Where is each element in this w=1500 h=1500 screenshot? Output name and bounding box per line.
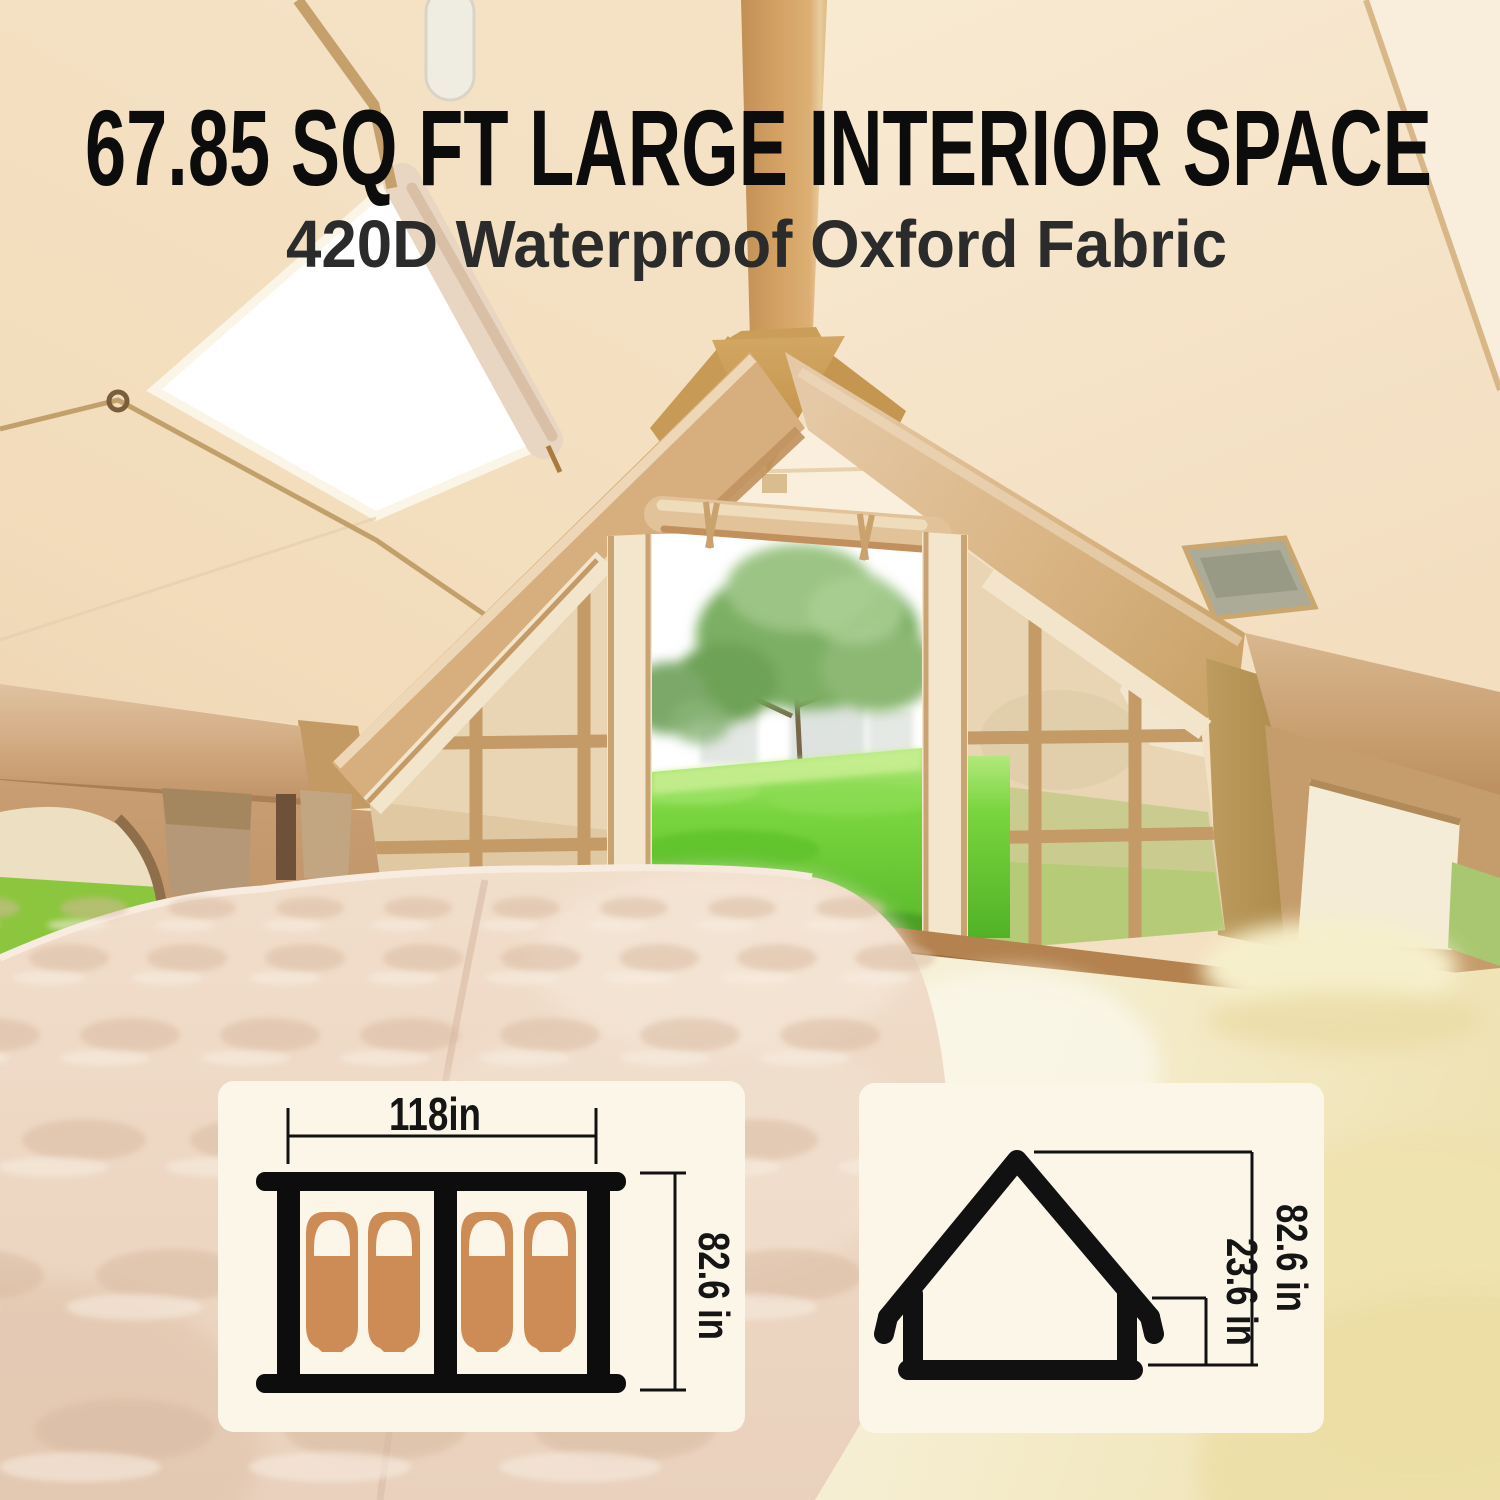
svg-text:118in: 118in (389, 1088, 481, 1140)
svg-text:82.6 in: 82.6 in (1267, 1204, 1316, 1312)
svg-text:82.6 in: 82.6 in (689, 1232, 738, 1340)
svg-text:420D Waterproof Oxford Fabric: 420D Waterproof Oxford Fabric (286, 207, 1227, 282)
svg-text:67.85 SQ FT LARGE INTERIOR SPA: 67.85 SQ FT LARGE INTERIOR SPACE (85, 87, 1432, 208)
svg-text:23.6 in: 23.6 in (1217, 1238, 1266, 1346)
